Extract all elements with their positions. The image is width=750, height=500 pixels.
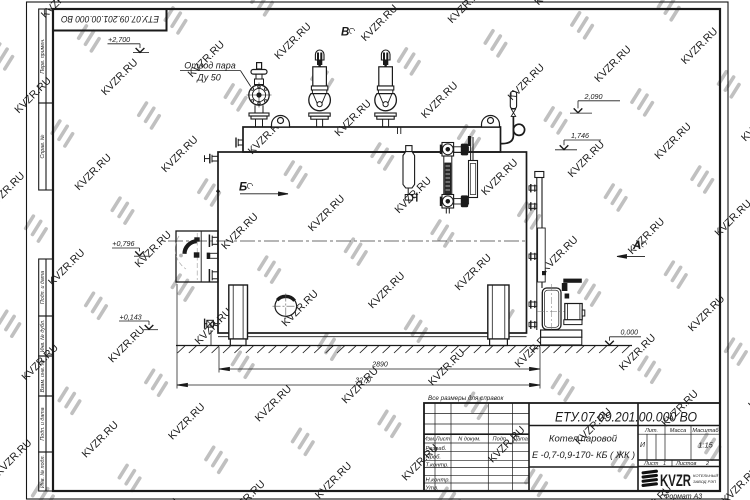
svg-text:Отвод пара: Отвод пара (184, 61, 235, 71)
svg-text:Лит.: Лит. (644, 428, 658, 434)
svg-text:Листов: Листов (675, 461, 696, 467)
svg-text:Подп. и дата: Подп. и дата (40, 271, 46, 304)
svg-text:Проб.: Проб. (426, 455, 442, 461)
svg-text:1: 1 (663, 461, 666, 467)
svg-text:Дата: Дата (512, 437, 528, 443)
svg-text:Котел паровой: Котел паровой (549, 434, 618, 445)
svg-text:Утв.: Утв. (425, 485, 439, 491)
svg-text:3270: 3270 (355, 378, 371, 385)
svg-text:Инв. № подл.: Инв. № подл. (40, 455, 46, 488)
svg-text:Е -0,7-0,9-170- КБ ( ЖК ): Е -0,7-0,9-170- КБ ( ЖК ) (532, 450, 635, 461)
svg-text:Н.контр.: Н.контр. (426, 477, 451, 483)
svg-text:И: И (640, 442, 646, 449)
svg-text:ЕТУ.07.09.201.00.000 ВО: ЕТУ.07.09.201.00.000 ВО (555, 409, 697, 425)
svg-text:N докум.: N докум. (458, 437, 481, 443)
svg-text:0,000: 0,000 (621, 330, 639, 337)
svg-text:ЗАВОД РЭП: ЗАВОД РЭП (693, 479, 716, 484)
svg-text:+2,700: +2,700 (108, 35, 130, 44)
svg-text:Подп. и дата: Подп. и дата (40, 407, 46, 440)
svg-text:Взам. инв. №: Взам. инв. № (40, 359, 46, 392)
svg-text:Инв. № дубл.: Инв. № дубл. (40, 320, 46, 353)
svg-text:2890: 2890 (371, 362, 388, 369)
svg-text:1:15: 1:15 (698, 441, 713, 450)
svg-text:Разраб.: Разраб. (426, 446, 447, 452)
svg-text:Т.контр.: Т.контр. (426, 462, 449, 468)
svg-text:А: А (632, 240, 641, 252)
svg-text:В: В (341, 27, 349, 39)
svg-text:1,746: 1,746 (571, 131, 589, 140)
svg-text:+0,143: +0,143 (120, 312, 142, 321)
svg-text:Справ. №: Справ. № (40, 134, 46, 158)
svg-text:КОТЕЛЬНЫЙ: КОТЕЛЬНЫЙ (693, 473, 718, 478)
svg-text:Перв. примен.: Перв. примен. (40, 38, 46, 73)
svg-text:ЕТУ.07.09.201.00.000 ВО: ЕТУ.07.09.201.00.000 ВО (61, 14, 159, 24)
svg-text:Изм.: Изм. (424, 437, 436, 443)
svg-text:Масштаб: Масштаб (692, 428, 719, 434)
svg-text:KVZR: KVZR (660, 472, 691, 490)
svg-text:Ду 50: Ду 50 (196, 73, 220, 83)
svg-text:Лист: Лист (435, 437, 451, 443)
svg-text:Масса: Масса (670, 428, 687, 434)
svg-text:Подп.: Подп. (493, 437, 508, 443)
svg-text:Лист: Лист (643, 461, 659, 467)
svg-text:Б: Б (239, 182, 247, 194)
svg-text:2,090: 2,090 (584, 92, 603, 101)
svg-text:Формат А3: Формат А3 (664, 494, 702, 500)
svg-text:Все размеры для справок: Все размеры для справок (428, 394, 504, 402)
svg-text:+0,796: +0,796 (112, 239, 134, 248)
